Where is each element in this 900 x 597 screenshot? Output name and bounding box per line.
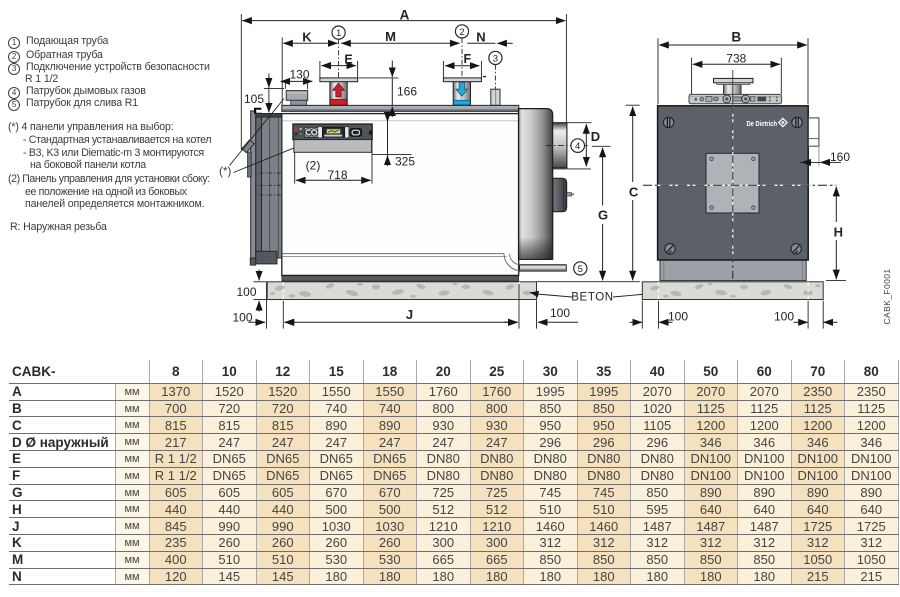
svg-text:160: 160	[830, 150, 850, 164]
svg-text:718: 718	[327, 168, 347, 182]
svg-text:De Dietrich: De Dietrich	[747, 121, 778, 128]
svg-text:C: C	[629, 185, 639, 200]
svg-text:1: 1	[336, 28, 341, 39]
svg-text:100: 100	[550, 306, 570, 320]
svg-text:E: E	[344, 53, 352, 67]
svg-text:4: 4	[575, 141, 580, 152]
svg-text:3: 3	[493, 53, 498, 64]
svg-text:100: 100	[236, 285, 256, 299]
svg-text:100: 100	[668, 309, 688, 323]
svg-text:K: K	[302, 30, 312, 45]
svg-text:H: H	[834, 225, 843, 240]
svg-text:G: G	[598, 208, 608, 223]
svg-text:M: M	[385, 29, 396, 44]
svg-text:B: B	[731, 30, 741, 45]
svg-text:(2): (2)	[306, 158, 321, 172]
svg-text:100: 100	[232, 310, 252, 324]
svg-text:BETON: BETON	[571, 292, 613, 304]
svg-text:D: D	[591, 129, 600, 144]
svg-text:N: N	[476, 30, 485, 45]
svg-text:105: 105	[244, 92, 264, 106]
svg-text:5: 5	[578, 264, 583, 275]
svg-text:166: 166	[397, 85, 417, 99]
svg-text:130: 130	[289, 67, 309, 81]
svg-text:A: A	[400, 8, 410, 23]
svg-text:J: J	[406, 307, 413, 322]
svg-text:738: 738	[726, 51, 746, 65]
svg-text:F: F	[463, 52, 471, 66]
svg-text:100: 100	[774, 309, 794, 323]
svg-text:CABK_F0001: CABK_F0001	[882, 269, 892, 325]
svg-text:2: 2	[459, 27, 464, 38]
svg-text:325: 325	[395, 155, 415, 169]
